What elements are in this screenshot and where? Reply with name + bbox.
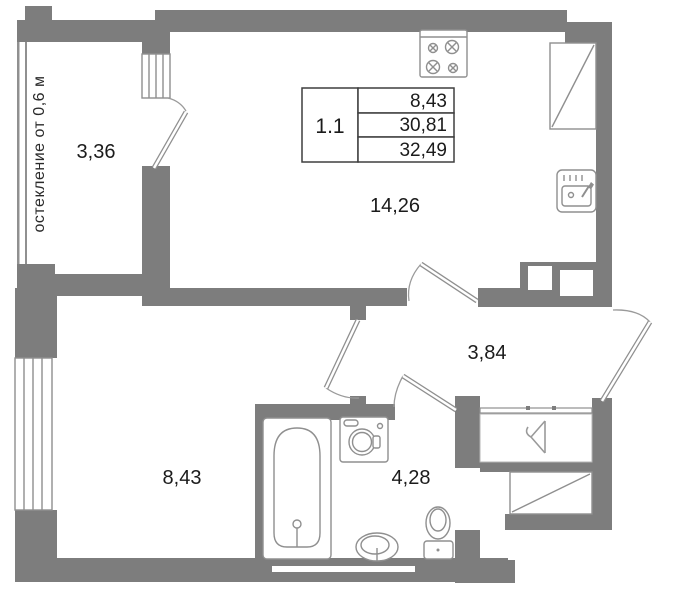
bathroom-sink-icon <box>356 533 398 561</box>
unit-info-table: 1.1 8,43 30,81 32,49 <box>302 88 454 162</box>
glazing-note: остекление от 0,6 м <box>31 76 48 233</box>
toilet-icon <box>424 507 453 559</box>
balcony-area-label: 3,36 <box>77 141 116 163</box>
balcony-glazing <box>17 42 27 264</box>
table-value-3: 32,49 <box>399 140 447 161</box>
kitchen-living-area-label: 14,26 <box>370 195 420 217</box>
balcony-window-icon <box>142 54 170 98</box>
vent-shaft-icon <box>510 472 592 514</box>
bedroom-area-label: 8,43 <box>163 467 202 489</box>
unit-number: 1.1 <box>315 115 344 138</box>
floor-plan-drawing: 1.1 8,43 30,81 32,49 3,36 14,26 3,84 8,4… <box>0 0 676 600</box>
floor-plan: 1.1 8,43 30,81 32,49 3,36 14,26 3,84 8,4… <box>0 0 676 600</box>
table-value-2: 30,81 <box>399 115 447 136</box>
bathroom-area-label: 4,28 <box>392 467 431 489</box>
bedroom-window-icon <box>15 358 52 510</box>
entrance-door <box>602 310 650 401</box>
stove-icon <box>420 30 467 77</box>
balcony-door <box>154 98 186 168</box>
hall-area-label: 3,84 <box>468 342 507 364</box>
kitchen-door <box>409 264 478 301</box>
bathtub-icon <box>263 418 331 559</box>
bathroom-door <box>394 376 456 410</box>
washing-machine-icon <box>340 417 388 462</box>
fridge-shaft-icon <box>550 43 596 129</box>
wardrobe <box>480 406 592 462</box>
kitchen-sink-icon <box>557 170 596 212</box>
bedroom-door <box>326 320 359 398</box>
table-value-1: 8,43 <box>410 91 447 112</box>
